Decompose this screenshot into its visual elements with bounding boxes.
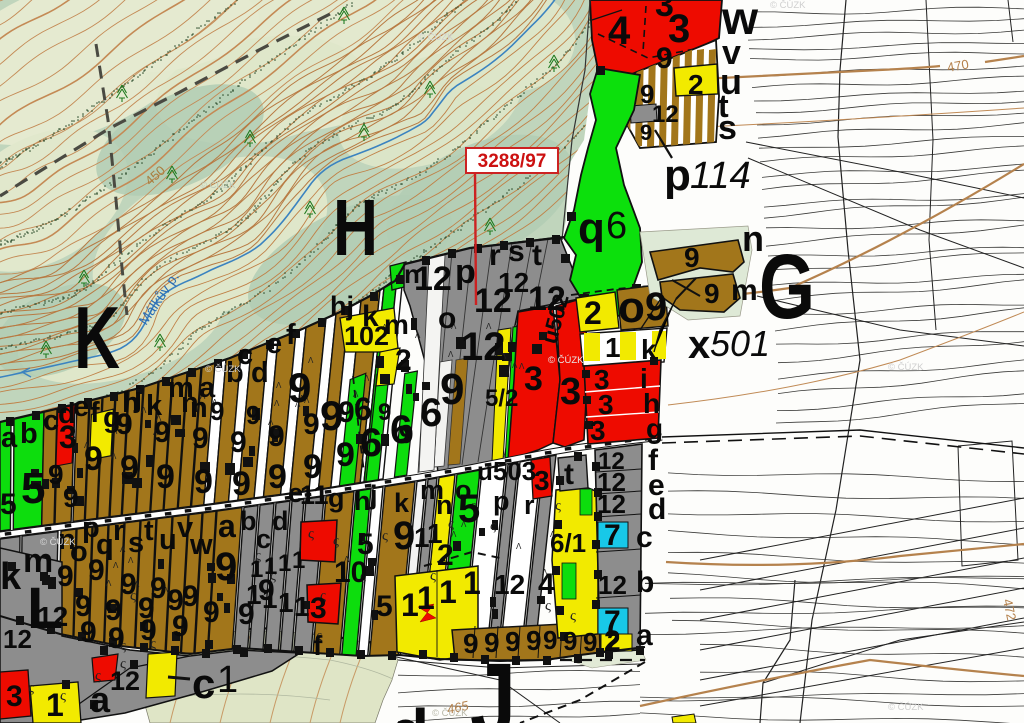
svg-text:o: o — [618, 283, 645, 332]
svg-text:f: f — [286, 319, 296, 351]
svg-text:m: m — [731, 274, 758, 307]
svg-text:1: 1 — [605, 332, 621, 363]
svg-text:9: 9 — [563, 626, 577, 656]
svg-text:Λ: Λ — [274, 399, 280, 408]
svg-text:2: 2 — [395, 344, 412, 377]
svg-text:9: 9 — [583, 627, 597, 657]
svg-text:© ČÚZK: © ČÚZK — [888, 702, 924, 713]
svg-text:9: 9 — [232, 465, 251, 503]
svg-text:© ČÚZK: © ČÚZK — [418, 32, 454, 43]
svg-text:1: 1 — [463, 565, 481, 601]
svg-text:9: 9 — [84, 440, 103, 478]
svg-text:5: 5 — [376, 590, 393, 623]
svg-text:9: 9 — [63, 482, 79, 513]
svg-text:9: 9 — [320, 392, 343, 439]
svg-text:1: 1 — [246, 579, 262, 610]
svg-text:6: 6 — [360, 421, 382, 465]
svg-text:4: 4 — [608, 9, 631, 53]
svg-text:12: 12 — [3, 624, 32, 654]
svg-text:Λ: Λ — [106, 579, 112, 588]
svg-text:12: 12 — [414, 260, 452, 298]
svg-text:9: 9 — [640, 120, 652, 145]
svg-text:2: 2 — [607, 629, 620, 656]
svg-text:© ČÚZK: © ČÚZK — [432, 708, 468, 719]
svg-text:9: 9 — [194, 463, 213, 501]
svg-text:12: 12 — [37, 601, 68, 632]
svg-text:© ČÚZK: © ČÚZK — [770, 0, 806, 11]
svg-text:6: 6 — [606, 205, 627, 247]
svg-text:6: 6 — [420, 391, 442, 435]
svg-text:12: 12 — [597, 489, 626, 519]
svg-text:1: 1 — [46, 687, 64, 723]
svg-text:t: t — [564, 458, 574, 491]
svg-text:1: 1 — [250, 556, 263, 583]
svg-text:Λ: Λ — [113, 561, 119, 570]
svg-text:2: 2 — [584, 295, 602, 331]
svg-text:ς: ς — [333, 533, 339, 549]
svg-text:Λ: Λ — [276, 381, 282, 390]
svg-text:501: 501 — [710, 323, 770, 364]
svg-text:5: 5 — [0, 488, 17, 521]
svg-text:6/1: 6/1 — [550, 528, 586, 558]
svg-text:© ČÚZK: © ČÚZK — [548, 355, 584, 366]
svg-text:9: 9 — [120, 449, 139, 487]
svg-text:k: k — [0, 556, 22, 598]
svg-text:g: g — [646, 413, 663, 444]
svg-text:1: 1 — [264, 553, 277, 580]
svg-text:© ČÚZK: © ČÚZK — [40, 537, 76, 548]
svg-text:Λ: Λ — [451, 530, 457, 539]
svg-text:K: K — [74, 288, 120, 387]
svg-text:7: 7 — [604, 519, 621, 552]
svg-text:9: 9 — [543, 625, 557, 655]
svg-text:9: 9 — [336, 436, 355, 474]
svg-text:9: 9 — [246, 400, 260, 430]
svg-text:3: 3 — [668, 7, 690, 51]
svg-text:Λ: Λ — [448, 350, 454, 359]
svg-text:n: n — [181, 387, 199, 419]
svg-text:9: 9 — [704, 278, 720, 309]
svg-text:9: 9 — [440, 365, 464, 414]
svg-text:9: 9 — [116, 408, 133, 441]
svg-text:9: 9 — [182, 580, 199, 613]
svg-text:9: 9 — [684, 242, 700, 273]
svg-text:9: 9 — [88, 554, 105, 587]
svg-text:a: a — [90, 679, 111, 720]
svg-text:a: a — [218, 508, 236, 544]
svg-text:9: 9 — [210, 396, 224, 426]
svg-text:9: 9 — [140, 614, 157, 647]
svg-text:3: 3 — [6, 680, 23, 713]
svg-text:11: 11 — [300, 480, 329, 510]
svg-text:ς: ς — [382, 528, 388, 544]
svg-text:d: d — [272, 506, 289, 536]
svg-text:f: f — [313, 630, 323, 661]
svg-text:3: 3 — [560, 371, 581, 413]
svg-text:Λ: Λ — [516, 542, 522, 551]
svg-text:9: 9 — [645, 285, 667, 329]
svg-text:p: p — [493, 486, 510, 516]
svg-text:o: o — [438, 302, 456, 335]
svg-text:c: c — [43, 405, 59, 437]
svg-text:g: g — [328, 483, 345, 513]
svg-text:j: j — [369, 480, 378, 510]
svg-text:s: s — [718, 109, 737, 147]
svg-text:3: 3 — [59, 419, 77, 455]
svg-text:ς: ς — [308, 526, 314, 542]
svg-text:© ČÚZK: © ČÚZK — [888, 362, 924, 373]
svg-text:b: b — [20, 418, 38, 450]
svg-text:n: n — [436, 490, 453, 520]
svg-text:b: b — [636, 566, 654, 599]
svg-text:1: 1 — [278, 587, 294, 618]
svg-text:a: a — [1, 422, 18, 454]
svg-text:5/2: 5/2 — [485, 385, 518, 412]
svg-text:ς: ς — [28, 680, 34, 696]
svg-text:1: 1 — [439, 574, 457, 610]
svg-text:1: 1 — [292, 547, 305, 574]
svg-text:s: s — [508, 235, 525, 268]
svg-text:k: k — [641, 334, 657, 365]
svg-text:s: s — [128, 527, 144, 559]
svg-text:t: t — [144, 515, 154, 547]
svg-text:r: r — [113, 515, 124, 547]
svg-text:3: 3 — [310, 592, 327, 625]
svg-text:c: c — [636, 521, 653, 554]
svg-text:1: 1 — [262, 583, 278, 614]
svg-text:1: 1 — [217, 659, 238, 701]
svg-text:12: 12 — [461, 325, 506, 369]
svg-text:5: 5 — [21, 464, 45, 513]
svg-text:9: 9 — [120, 568, 137, 601]
svg-text:9: 9 — [288, 364, 311, 411]
svg-text:1: 1 — [294, 591, 310, 622]
svg-text:e: e — [266, 328, 282, 360]
svg-text:9: 9 — [526, 625, 542, 656]
svg-text:9: 9 — [156, 458, 175, 496]
svg-text:ς: ς — [555, 498, 561, 514]
svg-text:9: 9 — [303, 408, 320, 441]
svg-text:3: 3 — [524, 360, 543, 398]
svg-text:12: 12 — [110, 666, 140, 696]
svg-text:9: 9 — [268, 458, 287, 496]
svg-text:9: 9 — [230, 426, 247, 459]
svg-text:5: 5 — [357, 528, 374, 561]
svg-text:9: 9 — [484, 627, 500, 658]
svg-text:x: x — [688, 323, 710, 367]
svg-text:b: b — [240, 506, 257, 536]
svg-text:1: 1 — [278, 550, 291, 577]
svg-text:12: 12 — [474, 282, 512, 320]
svg-text:hj: hj — [330, 291, 354, 321]
svg-text:2: 2 — [437, 539, 454, 572]
svg-text:d: d — [251, 357, 269, 389]
svg-text:k: k — [362, 300, 379, 333]
svg-text:t: t — [532, 239, 542, 272]
svg-text:ς: ς — [490, 518, 496, 534]
svg-text:9: 9 — [172, 610, 189, 643]
svg-text:2: 2 — [688, 69, 704, 100]
svg-text:H: H — [333, 183, 378, 272]
svg-text:114: 114 — [690, 155, 751, 197]
svg-text:© ČÚZK: © ČÚZK — [200, 180, 236, 191]
svg-text:12: 12 — [652, 101, 679, 128]
svg-text:Λ: Λ — [364, 374, 370, 383]
svg-text:9: 9 — [505, 626, 521, 657]
svg-text:w: w — [189, 529, 213, 561]
svg-text:a: a — [636, 619, 653, 652]
svg-text:c: c — [256, 524, 271, 554]
svg-text:Λ: Λ — [111, 452, 117, 461]
svg-text:Λ: Λ — [512, 361, 518, 370]
svg-text:j: j — [133, 382, 142, 414]
svg-text:12: 12 — [598, 570, 627, 600]
svg-text:q: q — [578, 204, 605, 253]
svg-text:5: 5 — [458, 487, 480, 531]
svg-text:9: 9 — [203, 596, 220, 629]
svg-text:9: 9 — [80, 616, 97, 649]
svg-text:3: 3 — [590, 415, 606, 446]
svg-text:9: 9 — [57, 560, 74, 593]
svg-text:u503: u503 — [477, 456, 536, 486]
svg-text:3: 3 — [534, 465, 550, 496]
svg-text:9: 9 — [108, 622, 125, 655]
svg-text:c: c — [192, 660, 215, 707]
svg-text:9: 9 — [154, 416, 171, 449]
svg-text:n: n — [742, 218, 764, 259]
svg-text:3288/97: 3288/97 — [478, 151, 547, 172]
svg-text:p: p — [455, 253, 476, 291]
svg-text:© ČÚZK: © ČÚZK — [205, 364, 241, 375]
svg-text:ς: ς — [570, 608, 576, 624]
svg-text:h: h — [354, 486, 371, 516]
svg-text:f: f — [90, 397, 100, 429]
svg-text:m: m — [384, 309, 409, 340]
svg-text:p: p — [664, 151, 691, 200]
svg-text:d: d — [390, 696, 429, 723]
svg-text:9: 9 — [393, 514, 415, 558]
svg-text:4: 4 — [538, 568, 555, 601]
svg-text:Λ: Λ — [415, 331, 421, 340]
svg-text:9: 9 — [48, 459, 64, 490]
svg-text:9: 9 — [399, 419, 413, 449]
svg-text:9: 9 — [215, 545, 237, 589]
svg-text:9: 9 — [192, 422, 209, 455]
svg-text:9: 9 — [463, 628, 479, 659]
svg-text:12: 12 — [494, 569, 525, 600]
svg-text:9: 9 — [268, 420, 285, 453]
svg-text:u: u — [159, 524, 177, 556]
svg-text:1: 1 — [417, 580, 435, 616]
